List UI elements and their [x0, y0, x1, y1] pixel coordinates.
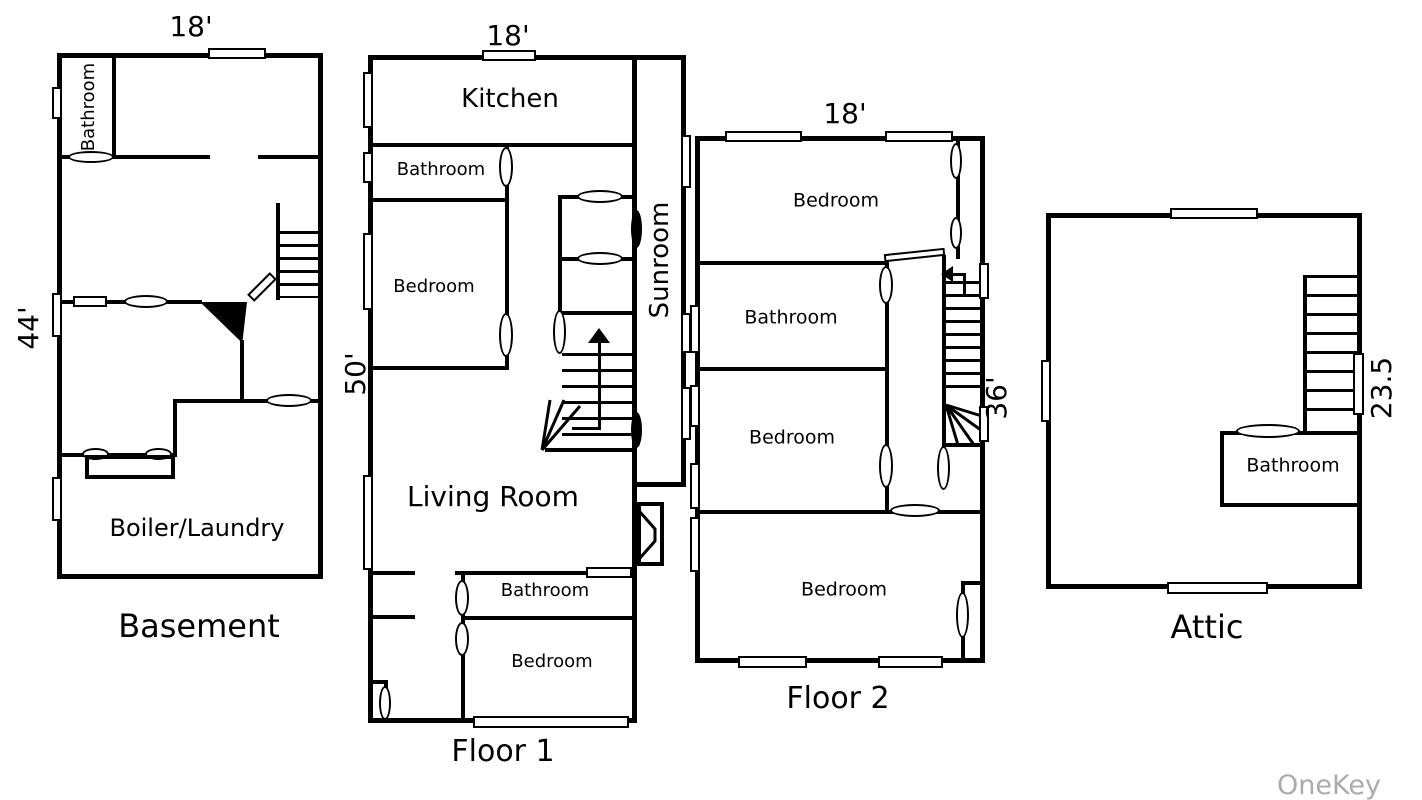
stairs [1307, 275, 1359, 425]
dimension-label: 23.5 [1368, 357, 1396, 419]
window [1353, 353, 1364, 415]
window [1167, 582, 1268, 594]
floor-plan-canvas: Bathroom Boiler/Laundry Basement 18' 44' [0, 0, 1422, 800]
interior-wall [1220, 431, 1224, 507]
watermark: OneKey MLS [1277, 770, 1422, 800]
window [1170, 208, 1258, 219]
interior-wall [1220, 503, 1362, 507]
window [1041, 360, 1051, 422]
floor-title: Attic [1171, 611, 1244, 643]
room-label: Bathroom [1246, 457, 1339, 476]
door [1236, 424, 1300, 438]
attic-plan: Bathroom Attic 23.5 [0, 0, 1422, 800]
